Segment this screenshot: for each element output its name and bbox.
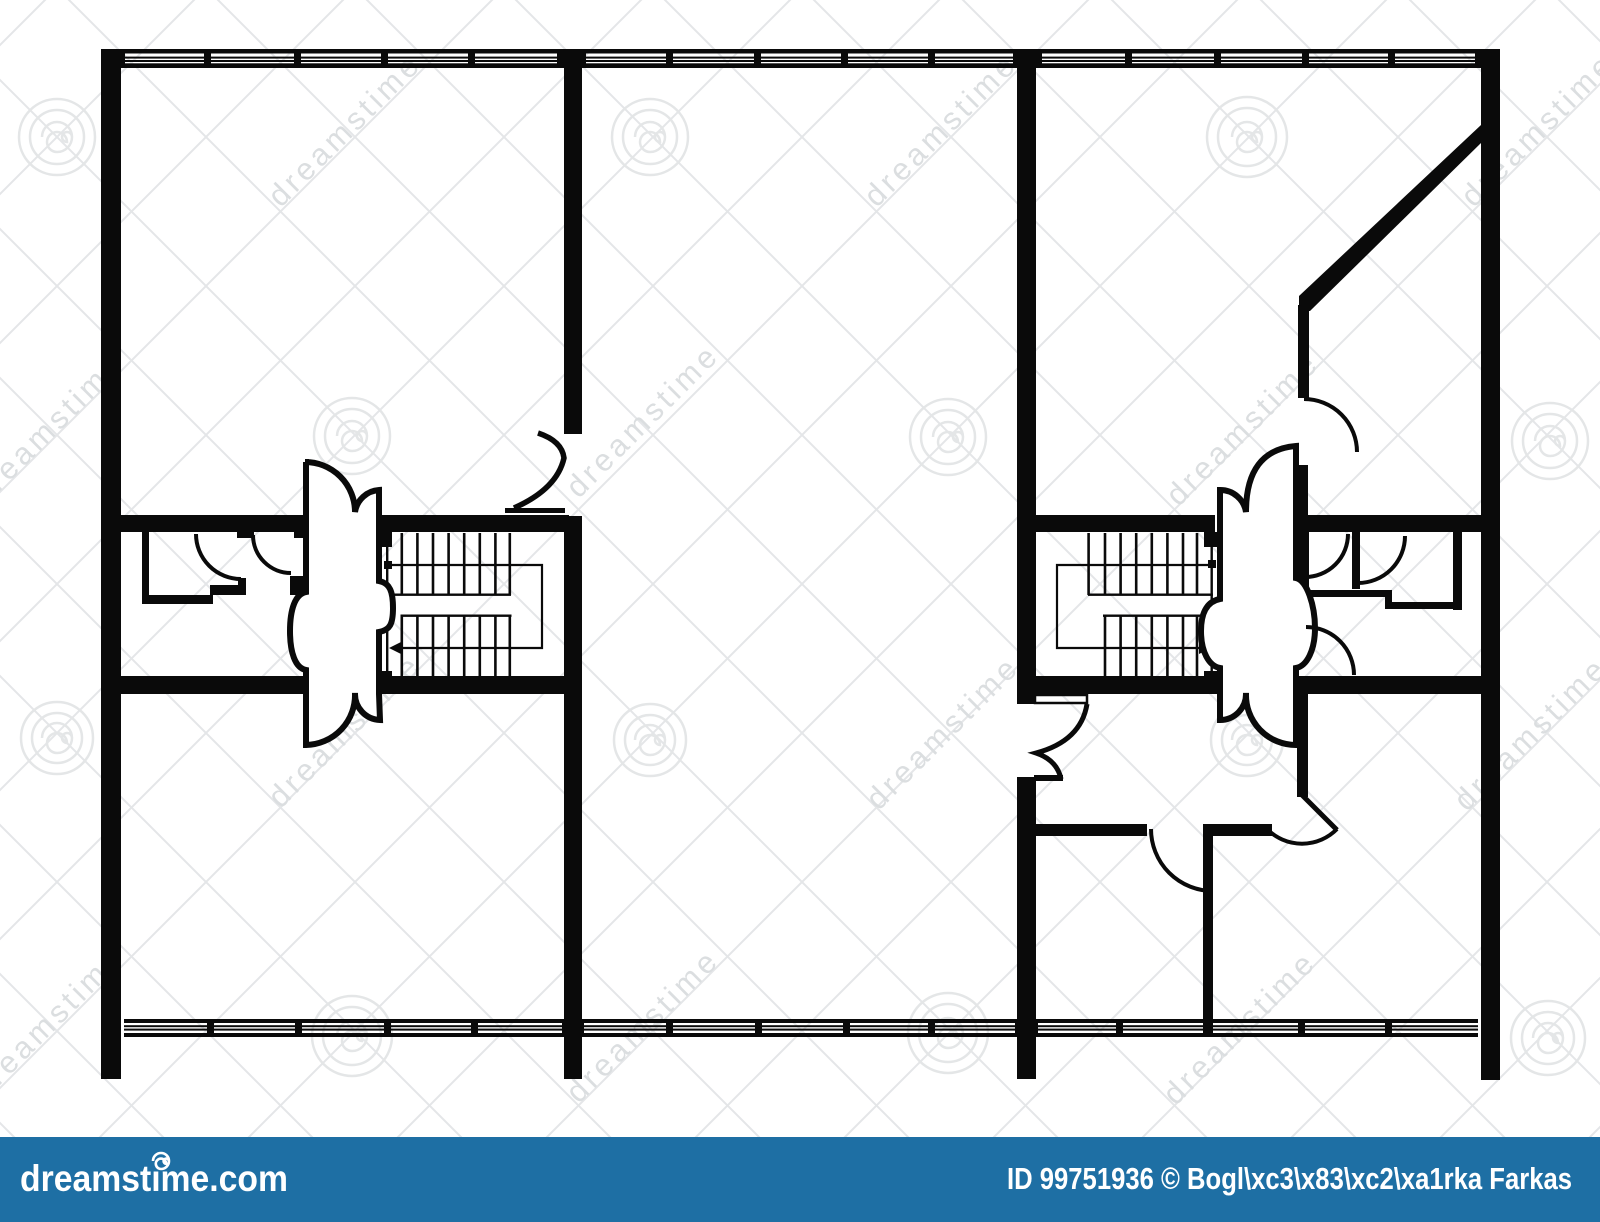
svg-text:dreamstıme.com: dreamstıme.com [20, 1158, 288, 1199]
svg-text:ID 99751936 © Bogl\xc3\x83\xc2: ID 99751936 © Bogl\xc3\x83\xc2\xa1rka Fa… [1007, 1161, 1572, 1196]
